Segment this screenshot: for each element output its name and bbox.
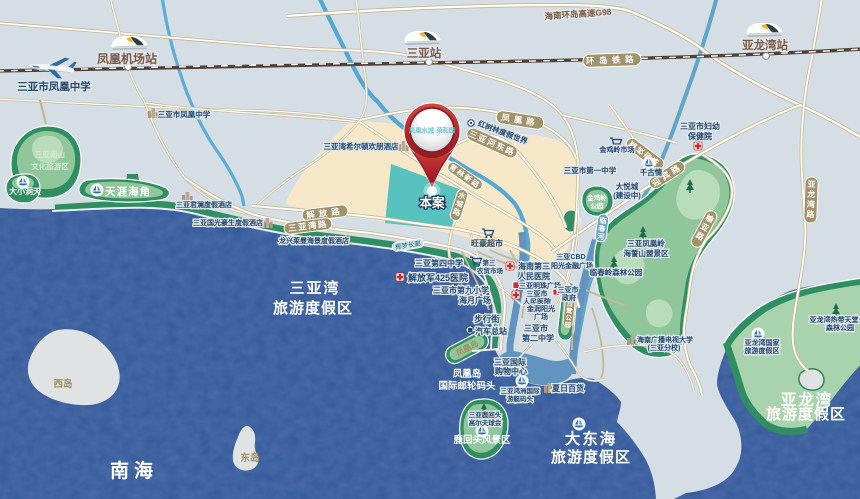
svg-text:(建设中): (建设中) bbox=[613, 190, 641, 200]
svg-text:三亚湾希尔顿欢朋酒店: 三亚湾希尔顿欢朋酒店 bbox=[324, 141, 399, 151]
svg-text:三亚凤凰岭: 三亚凤凰岭 bbox=[627, 238, 665, 248]
svg-text:千古情: 千古情 bbox=[640, 167, 663, 177]
svg-text:人民医院: 人民医院 bbox=[518, 271, 550, 281]
svg-text:三亚湾: 三亚湾 bbox=[289, 279, 340, 297]
svg-text:亚龙湾热带天堂: 亚龙湾热带天堂 bbox=[810, 315, 859, 324]
svg-text:临春岭森林公园: 临春岭森林公园 bbox=[590, 267, 643, 277]
svg-text:海南广播电视大学: 海南广播电视大学 bbox=[637, 335, 693, 344]
svg-text:三亚市凤凰中学: 三亚市凤凰中学 bbox=[17, 80, 91, 93]
svg-text:阳光金融广场: 阳光金融广场 bbox=[551, 261, 593, 270]
svg-text:广场: 广场 bbox=[534, 312, 548, 321]
svg-text:海南第三: 海南第三 bbox=[518, 261, 550, 271]
svg-text:三亚CBD: 三亚CBD bbox=[556, 253, 585, 261]
svg-text:环岛铁路: 环岛铁路 bbox=[586, 54, 638, 66]
svg-text:(三亚分校): (三亚分校) bbox=[648, 343, 681, 352]
svg-text:南海: 南海 bbox=[110, 459, 158, 482]
svg-text:三亚市第九小学: 三亚市第九小学 bbox=[433, 285, 489, 295]
svg-text:三亚南山: 三亚南山 bbox=[35, 149, 65, 159]
svg-text:农贸市场: 农贸市场 bbox=[476, 266, 504, 275]
svg-text:三亚第四中学: 三亚第四中学 bbox=[415, 258, 463, 268]
svg-text:旅游度假区: 旅游度假区 bbox=[744, 346, 780, 355]
svg-text:金润阳光: 金润阳光 bbox=[526, 304, 555, 313]
svg-text:亚龙湾站: 亚龙湾站 bbox=[742, 38, 788, 52]
svg-text:本案: 本案 bbox=[419, 195, 445, 210]
svg-text:三亚君澜度假酒店: 三亚君澜度假酒店 bbox=[176, 200, 232, 209]
svg-text:大东海: 大东海 bbox=[565, 429, 618, 448]
svg-text:汽车总站: 汽车总站 bbox=[475, 326, 507, 336]
svg-text:大小洞天: 大小洞天 bbox=[9, 186, 42, 196]
svg-text:第三: 第三 bbox=[483, 258, 497, 267]
svg-text:旅游度假区: 旅游度假区 bbox=[551, 448, 631, 466]
svg-text:金鸡岭市场: 金鸡岭市场 bbox=[599, 145, 635, 154]
svg-text:亚龙湾国家: 亚龙湾国家 bbox=[745, 338, 781, 347]
svg-text:游艇码头: 游艇码头 bbox=[507, 394, 534, 403]
svg-text:公园: 公园 bbox=[591, 201, 605, 210]
svg-text:旺豪超市: 旺豪超市 bbox=[471, 238, 503, 248]
svg-text:第二中学: 第二中学 bbox=[522, 333, 554, 343]
svg-text:三亚鸿洲国际: 三亚鸿洲国际 bbox=[501, 386, 541, 395]
svg-text:解放军425医院: 解放军425医院 bbox=[408, 272, 468, 283]
svg-text:三亚国光豪生度假酒店: 三亚国光豪生度假酒店 bbox=[193, 218, 263, 227]
svg-text:夏日百货: 夏日百货 bbox=[551, 383, 584, 393]
svg-text:三亚国际: 三亚国际 bbox=[494, 357, 526, 367]
svg-text:三亚鹿回头: 三亚鹿回头 bbox=[469, 410, 502, 419]
svg-text:凤凰岛: 凤凰岛 bbox=[453, 368, 482, 380]
svg-text:高尔夫球会: 高尔夫球会 bbox=[469, 418, 502, 427]
svg-text:森林公园: 森林公园 bbox=[826, 323, 854, 332]
svg-text:购物中心: 购物中心 bbox=[495, 366, 527, 376]
svg-text:鹿回头风景区: 鹿回头风景区 bbox=[452, 434, 511, 446]
svg-text:天涯海角: 天涯海角 bbox=[105, 185, 151, 198]
svg-text:海誓山盟景区: 海誓山盟景区 bbox=[624, 248, 669, 258]
svg-text:保健院: 保健院 bbox=[687, 131, 712, 141]
svg-text:三亚市: 三亚市 bbox=[527, 289, 548, 298]
svg-text:海月广场: 海月广场 bbox=[459, 295, 491, 305]
svg-text:凤凰机场站: 凤凰机场站 bbox=[97, 51, 157, 66]
svg-text:国际邮轮码头: 国际邮轮码头 bbox=[438, 380, 496, 392]
svg-text:三亚市: 三亚市 bbox=[524, 323, 548, 333]
svg-text:三亚市妇幼: 三亚市妇幼 bbox=[680, 121, 720, 131]
svg-text:西岛: 西岛 bbox=[53, 378, 72, 390]
svg-text:旅游度假区: 旅游度假区 bbox=[273, 299, 353, 317]
svg-text:龙兴莱曼海景度假酒店: 龙兴莱曼海景度假酒店 bbox=[278, 236, 349, 245]
svg-text:旅游度假区: 旅游度假区 bbox=[766, 405, 846, 423]
svg-text:三亚市第一中学: 三亚市第一中学 bbox=[564, 165, 617, 175]
svg-text:大悦城: 大悦城 bbox=[616, 181, 639, 191]
svg-text:三亚明珠广场: 三亚明珠广场 bbox=[519, 281, 561, 290]
svg-text:政府: 政府 bbox=[562, 293, 576, 302]
svg-text:步行街: 步行街 bbox=[474, 314, 500, 324]
svg-text:东岛: 东岛 bbox=[240, 452, 259, 464]
svg-text:文化旅游区: 文化旅游区 bbox=[31, 161, 69, 171]
svg-text:凤凰水城·荣和园: 凤凰水城·荣和园 bbox=[409, 126, 455, 135]
svg-text:人民医院: 人民医院 bbox=[523, 297, 551, 306]
svg-text:三亚市: 三亚市 bbox=[558, 285, 579, 294]
svg-text:三亚站: 三亚站 bbox=[407, 46, 442, 60]
svg-text:金鸡岭: 金鸡岭 bbox=[586, 193, 607, 202]
svg-text:三亚市凤凰中学: 三亚市凤凰中学 bbox=[158, 109, 211, 119]
